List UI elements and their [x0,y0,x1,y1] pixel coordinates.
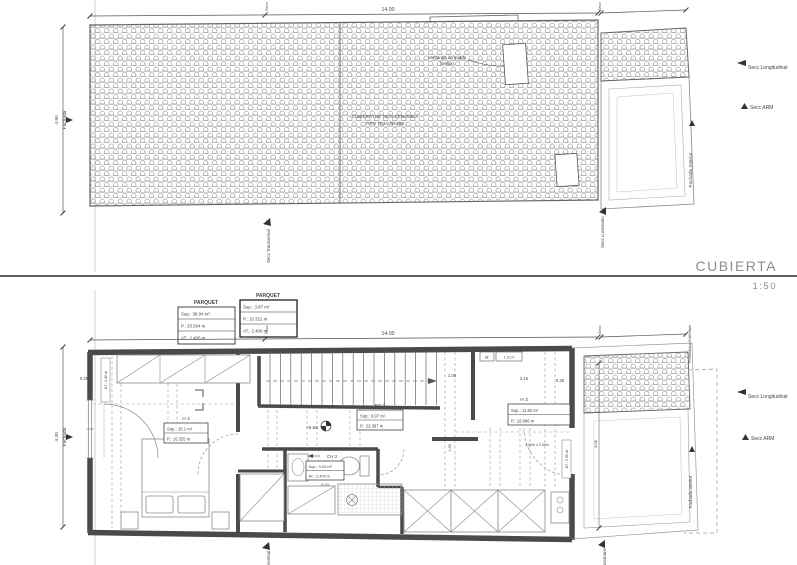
stair-direction-arrow-icon [428,378,437,384]
roof-skylight-2 [555,153,579,186]
h3-p: P.: 16.086 m [511,419,535,424]
roof-skylight-1 [503,43,529,85]
roof-secc-marker-left: Secc [264,2,269,11]
level-marker: +6.66 [306,421,331,431]
floor-dim-facade-value: 4.30 [54,432,60,442]
legend1-p: P.: 33.504 m [181,324,206,329]
nightstand-right [212,512,229,529]
floor-secc-transversal-label: Secc Transversal [266,551,271,565]
roof-secc-lucernario-label: Secc Lucernario [600,216,605,248]
ch3-at: AT.: 2.400 m [309,474,331,479]
ch3-sup: Sup.: 3.29 m² [309,464,333,469]
pillow-right [178,496,205,513]
secc-lucernario-arrow-icon-2 [598,540,605,548]
roof-secc-longitudinal: Secc Longitudinal [748,65,787,71]
floor-fachada-interior-label: Fachada Interior [688,475,693,508]
stair-treads [270,351,436,405]
secc-transversal-arrow-icon [263,218,271,226]
ch3-door-arc [378,449,404,475]
nightstand-left [121,512,138,529]
ec2-sup: Sup.: 6.97 m² [360,414,386,419]
room-label-h4: H 4 Sup.: 15.1 m² P.: 16.325 m [164,416,208,443]
facade-arrow-icon-2 [66,434,73,440]
ch3-name: CH 3 [327,454,338,459]
dim-at240: AT.: 2.40 m [104,371,108,389]
floor-secc-marker-right: Secc [597,325,602,334]
roof-section-labels: Secc Longitudinal Secc ARM [737,60,787,111]
floor-secc-arm: Secc ARM [751,436,774,442]
fachada-interior-arrow-icon-2 [689,446,695,452]
facade-arrow-icon [66,117,73,123]
roof-plan: 14.00 Secc Secc 4.90 Fachada Ventanas de… [54,0,787,272]
legend1-title: PARQUET [194,300,218,306]
floor-section-labels: Secc Longitudinal Secc ARM [737,389,787,442]
toilet-tank [360,456,369,476]
roof-note-line1: CUBIERTA DE TEJA CERÁMICA [352,113,419,119]
secc-longitudinal-arrow-icon-2 [737,389,746,395]
roof-secc-lucernario: Secc Lucernario [599,207,606,248]
secc-arm-arrow-icon-2 [742,434,749,440]
sheet-scale: 1:50 [753,281,778,292]
secc-longitudinal-arrow-icon [737,60,746,66]
h4-name: H 4 [182,416,190,422]
profundidad-edificable-label: Profundidad Edificable [688,325,692,363]
courtyard-roof-tiles [584,352,690,413]
wardrobe-top [117,355,250,383]
legend-parquet-left: PARQUET Sup.: 38.04 m² P.: 33.504 m AT.:… [178,300,235,344]
floor-secc-lucernario-label: Secc Lucernario [602,547,607,565]
floor-secc-longitudinal: Secc Longitudinal [748,394,787,400]
roof-dim-facade-value: 4.90 [54,115,60,125]
floor-secc-lucernario: Secc Lucernario [598,540,607,565]
roof-fachada-interior-label: Fachada Interior [688,152,694,187]
shower-tray [338,484,402,515]
h4-sup: Sup.: 15.1 m² [167,427,193,432]
floor-courtyard: 3.06 Fachada Interior Profundidad Edific… [572,325,717,539]
h3-sup: Sup.: 11.82 m² [511,408,539,413]
dim-at250: AT.: 2.50 m [565,450,569,468]
roof-left-dimension: 4.90 Fachada [54,27,73,213]
water-heater [551,492,569,523]
roof-courtyard-tiles [601,28,689,81]
plan-drawing-svg: 14.00 Secc Secc 4.90 Fachada Ventanas de… [0,0,797,565]
roof-note-line2: TIPO TEJA ÁRABE [366,120,405,126]
ec2-name: EC 2 [375,403,386,409]
ch3-dim-below: 0.70 [321,482,329,487]
roof-secc-transversal: Secc Transversal [263,218,271,263]
room-label-h3: H 3 Sup.: 11.82 m² P.: 16.086 m [508,397,570,425]
legend2-sup: Sup.: 3.87 m² [243,305,270,310]
corner-mark-1 [195,390,203,397]
legend2-p: P.: 10.321 m [243,317,268,322]
floor-left-dimension: 4.30 Fachada [54,347,73,527]
roof-secc-transversal-label: Secc Transversal [266,229,271,263]
ch3-fixtures [288,454,402,515]
skylight-note-line2: (Velux) [440,61,455,66]
dim-216: 2.16 [520,376,529,381]
dim-198: 1.98 [448,444,452,451]
legend2-title: PARQUET [256,293,280,299]
sink-basin [292,459,304,476]
title-block: CUBIERTA 1:50 [0,258,797,292]
ch3-arrow-icon [308,454,313,458]
window-sill-label: alf. [485,356,490,360]
dim-035: 0.35 [556,378,565,383]
ec2-p: P.: 22.397 m [360,424,384,429]
window-sill-value: 1.10 m [504,356,515,360]
window-left-wall [87,400,94,458]
skylight-note-line1: Ventanas de tejado [428,55,467,60]
dim-100: 1.00 [448,373,457,378]
h4-p: P.: 16.325 m [167,437,191,442]
roof-secc-arm: Secc ARM [750,105,773,111]
pillow-left [146,496,173,513]
legend1-sup: Sup.: 38.04 m² [181,312,210,317]
sheet-title: CUBIERTA [696,258,778,274]
floor-secc-marker-left: Secc [264,325,269,334]
secc-transversal-arrow-icon-2 [262,542,270,550]
level-value: +6.66 [306,425,318,431]
staircase [266,351,437,405]
floor-dim-width: 14.00 [382,331,395,337]
roof-secc-marker-right: Secc [597,2,602,11]
h3-name: H 3 [520,397,528,403]
dim-306: 3.06 [593,439,598,448]
dim-door: 2.00m x 2.00m [525,443,549,447]
secc-arm-arrow-icon [741,103,748,109]
floor-secc-transversal: Secc Transversal [262,542,271,565]
dim-025: 0.25 [80,376,89,381]
roof-dim-width: 14.00 [382,7,395,13]
architectural-sheet: 14.00 Secc Secc 4.90 Fachada Ventanas de… [0,0,797,565]
roof-courtyard: Fachada Interior [601,28,695,209]
room-label-ch3: CH 3 Sup.: 3.29 m² AT.: 2.400 m 0.70 [306,454,344,487]
